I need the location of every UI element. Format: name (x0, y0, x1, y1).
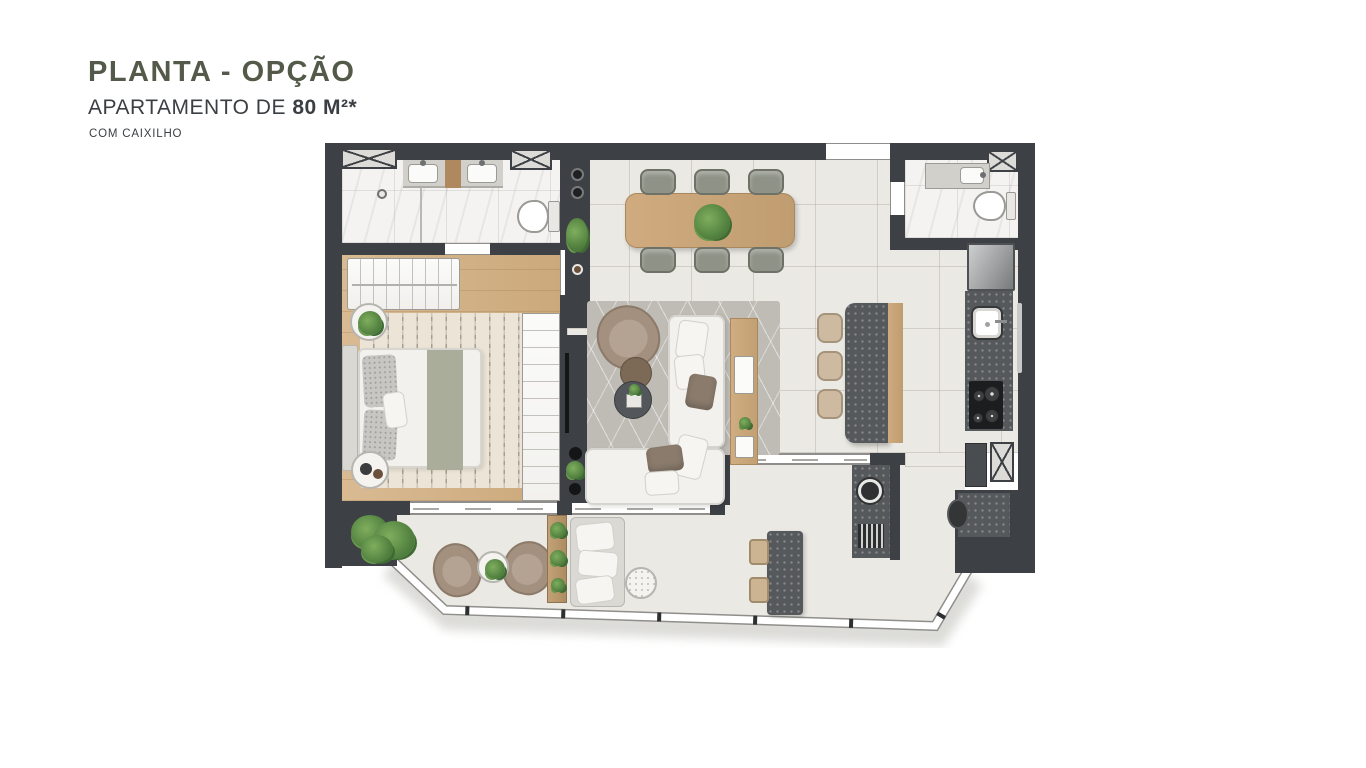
barbecue-grill (857, 523, 885, 549)
sofa-pillow (684, 373, 717, 411)
bed (358, 348, 482, 468)
double-vanity (403, 160, 503, 188)
dining-table (625, 193, 795, 248)
guest-sink-counter (925, 163, 990, 189)
guest-bath-door (890, 182, 905, 215)
speaker (571, 186, 584, 199)
duct-shaft (341, 148, 397, 169)
vanity-wood-strip (445, 160, 461, 188)
duct-shaft (987, 150, 1018, 172)
dining-chair (748, 247, 784, 273)
faucet (420, 160, 426, 166)
wall-south-b2 (870, 453, 905, 465)
speaker (571, 168, 584, 181)
bed-blanket (427, 350, 463, 470)
toilet-tank (1006, 192, 1016, 220)
floor-plan (325, 143, 1035, 648)
outdoor-round-table (625, 567, 657, 599)
kitchen-island (845, 303, 888, 443)
bedside-table (350, 303, 388, 341)
wall-left (325, 143, 342, 568)
outdoor-side-table (477, 551, 509, 583)
round-sink (858, 479, 882, 503)
planter-bench (547, 515, 567, 603)
cup (360, 463, 372, 475)
faucet (980, 172, 986, 178)
potted-plant (566, 218, 588, 252)
wall-guestbath-west-a (890, 160, 905, 182)
toilet (517, 200, 560, 233)
potted-plant (550, 550, 566, 566)
dining-chair (694, 169, 730, 195)
outdoor-sofa (570, 517, 625, 607)
sofa-cushion (577, 549, 619, 578)
bedroom-balcony-slider (410, 501, 557, 515)
wardrobe-rail (352, 284, 457, 286)
kitchen-sink (971, 306, 1003, 340)
shower-head (377, 189, 387, 199)
toilet-tank (548, 201, 560, 232)
bedroom-closet (522, 313, 560, 501)
potted-plant (485, 559, 505, 579)
wall-south-pier1 (557, 501, 572, 515)
bar-stool (817, 351, 843, 381)
wall-bath-south-a (342, 243, 445, 255)
cup (373, 469, 383, 479)
title-block: PLANTA - OPÇÃO APARTAMENTO DE 80 M²* COM… (88, 56, 357, 140)
kitchen-passage-floor (905, 453, 965, 467)
kitchen-island-wood-side (888, 303, 903, 443)
grill-counter (852, 465, 890, 558)
decor-box (735, 436, 754, 458)
wall-grill-east (890, 465, 900, 560)
page-subtitle: APARTAMENTO DE 80 M²* (88, 96, 357, 120)
coffee-table (614, 381, 652, 419)
fridge (967, 243, 1015, 291)
dining-chair (640, 169, 676, 195)
bar-stool (817, 389, 843, 419)
drain (985, 322, 990, 327)
ice-bucket (947, 499, 969, 529)
potted-plant (551, 578, 565, 592)
vanity-sink (467, 164, 497, 183)
bowl (572, 264, 583, 275)
service-shaft (990, 442, 1014, 482)
kitchen-cabinet (965, 443, 987, 487)
potted-plant (566, 461, 584, 479)
toilet-bowl (973, 191, 1006, 221)
planter-pot (569, 447, 582, 460)
bedside-table (351, 451, 389, 489)
faucet (995, 320, 1007, 323)
dining-chair (694, 247, 730, 273)
bed-cushion (382, 391, 409, 430)
dining-chair (748, 169, 784, 195)
sofa-cushion (575, 521, 616, 553)
page-note: COM CAIXILHO (89, 128, 357, 140)
guest-toilet (973, 191, 1017, 221)
toilet-bowl (517, 200, 549, 233)
master-bath-door (445, 243, 490, 255)
potted-plant (358, 311, 382, 335)
table-centerpiece-plant (694, 204, 730, 240)
entrance-door (826, 143, 890, 160)
laptop (626, 394, 642, 408)
bedroom-wardrobe (347, 258, 460, 310)
control-panel (734, 356, 754, 394)
media-cabinet (730, 318, 758, 465)
dining-chair (640, 247, 676, 273)
tv-screen (565, 353, 569, 433)
vanity-sink (408, 164, 438, 183)
planter-pot (569, 483, 581, 495)
balcony-bush (361, 535, 393, 563)
page-title: PLANTA - OPÇÃO (88, 56, 357, 89)
door-handle-strip (1017, 303, 1022, 373)
sofa-cushion (574, 574, 615, 605)
cooktop (969, 381, 1003, 429)
potted-plant (739, 417, 751, 429)
balcony-chair (749, 577, 769, 603)
balcony-chair (749, 539, 769, 565)
wall-bath-south-b (490, 243, 567, 255)
duct-shaft (510, 149, 552, 170)
wall-top-left (325, 143, 826, 160)
potted-plant (550, 522, 566, 538)
faucet (479, 160, 485, 166)
potted-plant (629, 384, 640, 395)
bar-stool (817, 313, 843, 343)
bed-headboard (342, 345, 358, 471)
balcony-dining-table (767, 531, 803, 615)
sofa-pillow (644, 470, 680, 496)
